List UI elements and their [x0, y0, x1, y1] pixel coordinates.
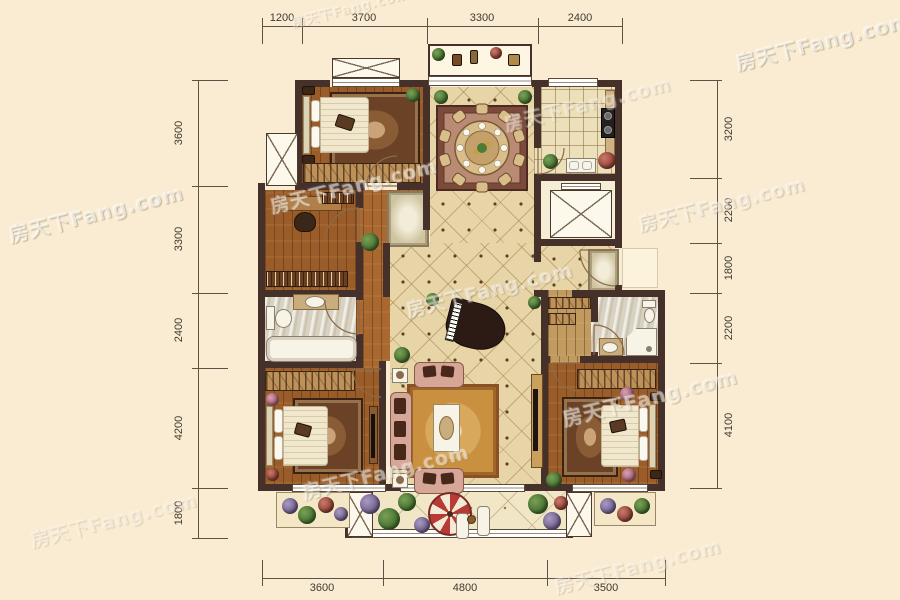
door-arc	[594, 325, 624, 355]
tick	[262, 560, 263, 586]
tick	[622, 18, 623, 44]
door-arc	[538, 148, 564, 174]
tick	[427, 18, 428, 44]
dim-label: 3300	[452, 12, 512, 26]
dim-label: 4100	[723, 405, 737, 445]
tick	[192, 368, 228, 369]
tick	[690, 293, 722, 294]
dim-label: 2400	[173, 310, 187, 350]
dim-label: 3300	[173, 219, 187, 259]
door-arc	[552, 363, 580, 391]
dimension-line-left	[198, 80, 199, 538]
tick	[547, 560, 548, 586]
entry-door-arc	[580, 250, 616, 286]
dimension-line-top	[262, 26, 622, 27]
tick	[192, 488, 228, 489]
door-arc	[325, 208, 359, 242]
dim-label: 3200	[723, 109, 737, 149]
dim-label: 3600	[292, 582, 352, 596]
dim-label: 2400	[550, 12, 610, 26]
tick	[690, 178, 722, 179]
dim-label: 1800	[723, 248, 737, 288]
dim-label: 3600	[173, 113, 187, 153]
dimension-line-right	[717, 80, 718, 488]
door-arc	[325, 300, 359, 334]
dim-label: 4800	[435, 582, 495, 596]
tick	[690, 488, 722, 489]
tick	[192, 293, 228, 294]
tick	[192, 186, 228, 187]
dim-label: 4200	[173, 408, 187, 448]
tick	[538, 18, 539, 44]
door-arc	[353, 369, 381, 397]
tick	[690, 243, 722, 244]
tick	[192, 538, 228, 539]
tick	[383, 560, 384, 586]
tick	[192, 80, 228, 81]
tick	[690, 80, 722, 81]
floorplan-image: 1200 3700 3300 2400 3600 4800 3500 3600 …	[0, 0, 900, 600]
dim-label: 2200	[723, 308, 737, 348]
